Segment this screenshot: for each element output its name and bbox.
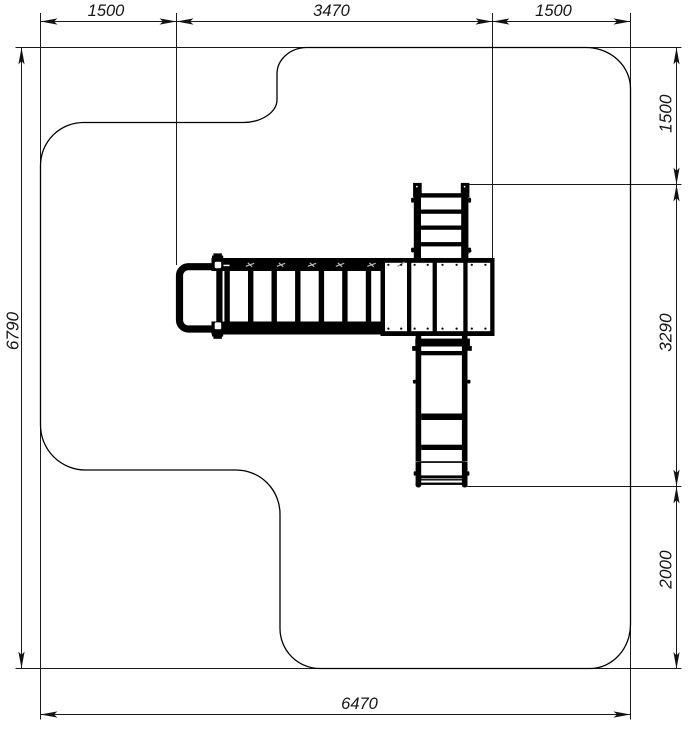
svg-text:3290: 3290 (656, 313, 676, 352)
svg-text:2000: 2000 (655, 550, 675, 590)
svg-text:6470: 6470 (341, 695, 379, 713)
svg-text:1500: 1500 (535, 2, 573, 20)
svg-text:6790: 6790 (2, 311, 22, 350)
svg-text:1500: 1500 (656, 94, 676, 133)
svg-text:3470: 3470 (313, 2, 351, 20)
svg-text:1500: 1500 (88, 2, 126, 20)
